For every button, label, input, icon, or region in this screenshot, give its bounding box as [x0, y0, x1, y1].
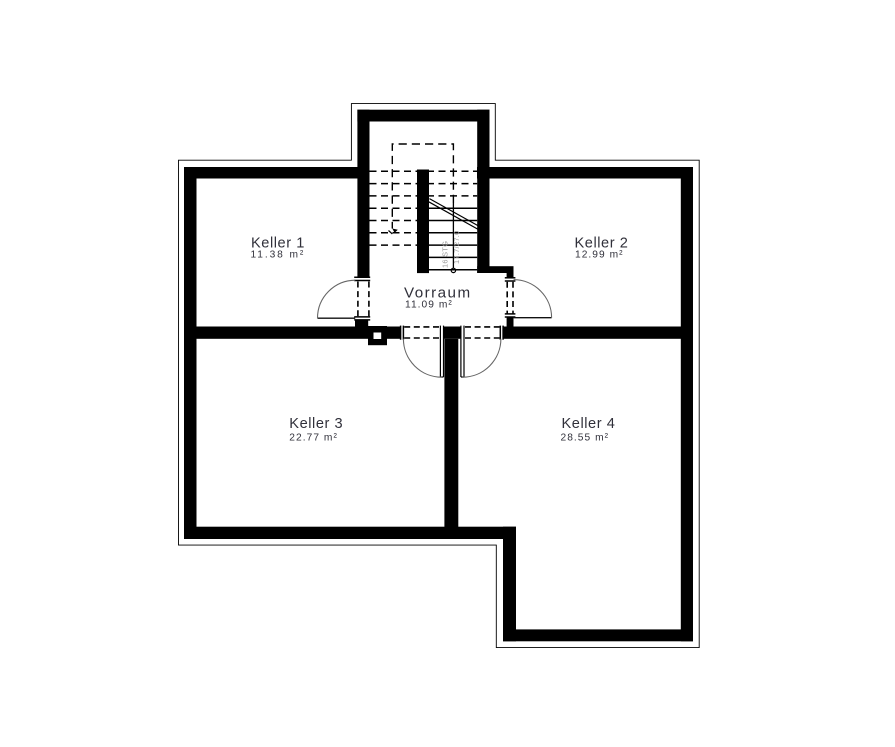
svg-text:16 STG: 16 STG	[441, 241, 450, 268]
svg-text:22.77 m²: 22.77 m²	[289, 433, 338, 444]
svg-text:28.55 m²: 28.55 m²	[561, 433, 610, 444]
svg-text:Keller 4: Keller 4	[562, 416, 616, 432]
svg-text:17.7/27.0: 17.7/27.0	[452, 230, 461, 264]
svg-text:11.38 m²: 11.38 m²	[251, 250, 306, 261]
svg-text:Keller 3: Keller 3	[289, 416, 343, 432]
svg-text:11.09 m²: 11.09 m²	[405, 300, 453, 311]
svg-text:12.99 m²: 12.99 m²	[575, 250, 624, 261]
